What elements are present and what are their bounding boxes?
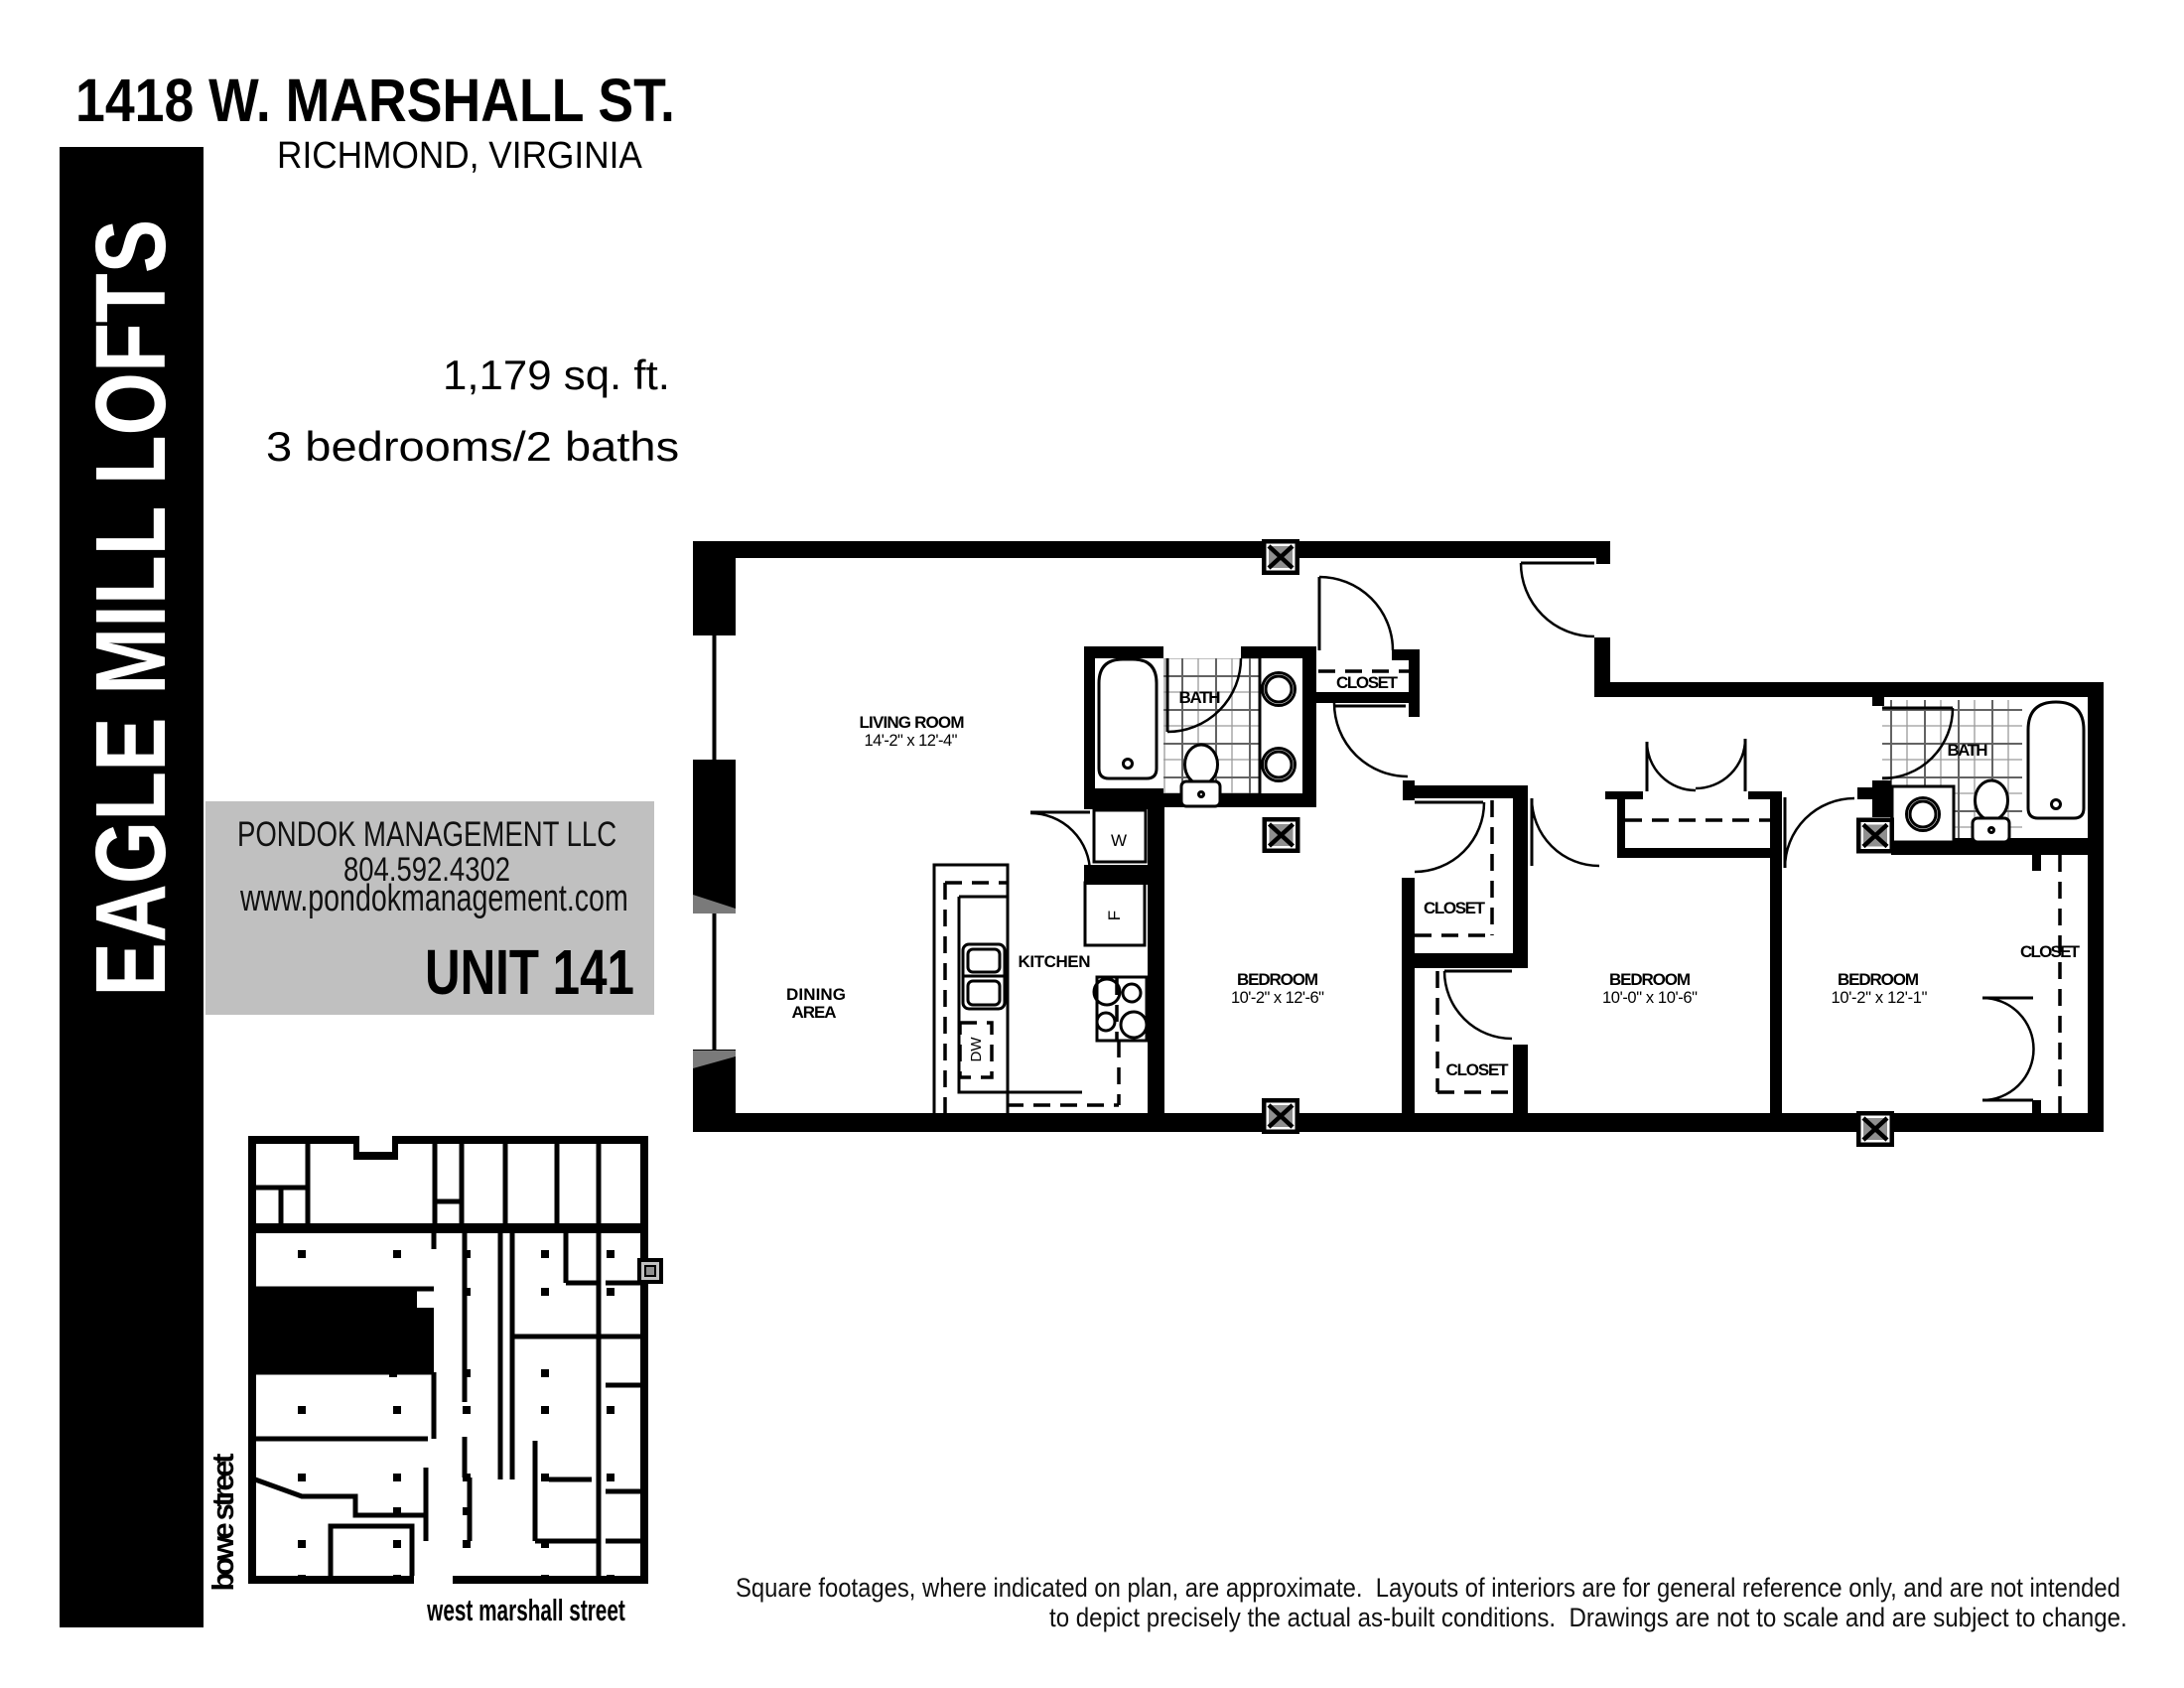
svg-text:DINING: DINING [786,985,846,1004]
svg-text:bowe street: bowe street [205,1454,240,1592]
svg-text:10'-0" x 10'-6": 10'-0" x 10'-6" [1602,989,1698,1007]
svg-text:LIVING ROOM: LIVING ROOM [860,713,965,732]
svg-text:14'-2" x 12'-4": 14'-2" x 12'-4" [865,732,958,750]
svg-text:10'-2" x 12'-1": 10'-2" x 12'-1" [1832,989,1928,1007]
svg-text:CLOSET: CLOSET [1446,1060,1510,1079]
svg-text:F: F [1105,911,1124,920]
svg-text:BATH: BATH [1948,741,1988,760]
svg-text:BEDROOM: BEDROOM [1609,970,1691,989]
svg-text:KITCHEN: KITCHEN [1019,952,1091,971]
svg-text:10'-2" x 12'-6": 10'-2" x 12'-6" [1231,989,1324,1007]
svg-text:BATH: BATH [1179,688,1221,707]
svg-text:AREA: AREA [792,1003,837,1022]
svg-text:CLOSET: CLOSET [1424,899,1486,917]
svg-text:DW: DW [968,1037,985,1062]
svg-text:west marshall street: west marshall street [426,1593,625,1627]
svg-text:BEDROOM: BEDROOM [1237,970,1318,989]
svg-text:CLOSET: CLOSET [2020,942,2081,961]
svg-text:W: W [1111,831,1127,850]
svg-text:CLOSET: CLOSET [1336,673,1399,692]
svg-text:BEDROOM: BEDROOM [1838,970,1919,989]
